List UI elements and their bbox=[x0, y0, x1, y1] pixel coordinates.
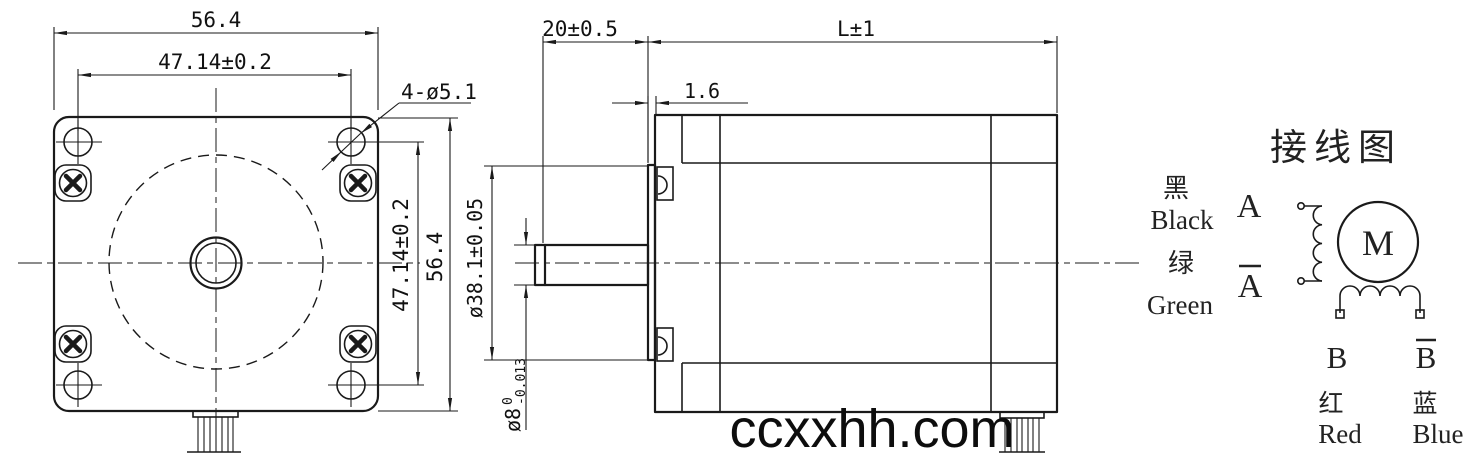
watermark-text: ccxxhh.com bbox=[729, 399, 1014, 459]
shaft-tolerance-lower: -0.013 bbox=[514, 358, 529, 405]
wiring-title: 接线图 bbox=[1270, 127, 1402, 168]
terminal-b-bar-label: B bbox=[1416, 340, 1437, 375]
motor-symbol-label: M bbox=[1362, 223, 1394, 263]
wiring-diagram: 接线图 黑 Black A 绿 Green A M bbox=[1147, 127, 1463, 449]
dim-front-height-outer-label: 56.4 bbox=[423, 232, 447, 283]
dim-shaft-extension: 20±0.5 bbox=[542, 17, 648, 243]
motor-symbol: M bbox=[1338, 202, 1418, 282]
dim-front-width-outer-label: 56.4 bbox=[191, 8, 242, 32]
svg-text:A: A bbox=[1238, 268, 1263, 305]
terminal-a-bar-label: A bbox=[1238, 266, 1263, 305]
assembly-screw-top-left bbox=[55, 165, 91, 201]
mounting-hole-bottom-left bbox=[56, 363, 102, 407]
svg-text:B: B bbox=[1416, 340, 1437, 375]
dim-front-width-holes-label: 47.14±0.2 bbox=[158, 50, 272, 74]
lead-blue-cn: 蓝 bbox=[1412, 390, 1437, 418]
dim-boss-diameter-label: ø38.1±0.05 bbox=[463, 198, 487, 318]
dim-front-height-holes-label: 47.14±0.2 bbox=[389, 198, 413, 312]
mounting-hole-top-left bbox=[56, 120, 102, 164]
dim-body-length-label: L±1 bbox=[837, 17, 875, 41]
dim-shaft-diameter: ø8 0 -0.013 bbox=[501, 218, 535, 432]
dim-front-height-holes: 47.14±0.2 bbox=[389, 142, 418, 385]
phase-a-winding bbox=[1298, 203, 1322, 284]
callout-mounting-holes: 4-ø5.1 bbox=[322, 80, 477, 170]
terminal-a-label: A bbox=[1237, 188, 1262, 225]
side-view: 20±0.5 L±1 1.6 ø38.1±0.05 bbox=[463, 17, 1140, 452]
shaft bbox=[535, 245, 648, 285]
lead-black-cn: 黑 bbox=[1163, 173, 1189, 203]
stepper-motor-drawing: 56.4 47.14±0.2 4-ø5.1 47.14±0.2 56.4 bbox=[0, 0, 1479, 474]
flange-hole-section-bottom bbox=[657, 328, 673, 361]
lead-green-cn: 绿 bbox=[1168, 248, 1194, 278]
drawing-canvas: 56.4 47.14±0.2 4-ø5.1 47.14±0.2 56.4 bbox=[0, 0, 1479, 474]
mounting-hole-bottom-right bbox=[328, 363, 424, 407]
assembly-screw-bottom-left bbox=[55, 326, 91, 362]
dim-shaft-diameter-label: ø8 bbox=[501, 408, 525, 432]
flange-hole-section-top bbox=[657, 167, 673, 200]
dim-boss-thickness: 1.6 bbox=[612, 79, 748, 162]
lead-red-cn: 红 bbox=[1318, 390, 1343, 418]
dim-boss-thickness-label: 1.6 bbox=[684, 79, 720, 103]
front-lead-wires bbox=[187, 411, 241, 452]
front-view: 56.4 47.14±0.2 4-ø5.1 47.14±0.2 56.4 bbox=[18, 8, 477, 452]
assembly-screw-top-right bbox=[340, 165, 376, 201]
dim-front-width-holes: 47.14±0.2 bbox=[78, 50, 351, 131]
lead-red-en: Red bbox=[1318, 419, 1362, 449]
lead-green-en: Green bbox=[1147, 290, 1213, 320]
callout-mounting-holes-label: 4-ø5.1 bbox=[401, 80, 477, 104]
terminal-b-label: B bbox=[1327, 340, 1348, 375]
lead-black-en: Black bbox=[1151, 205, 1214, 235]
assembly-screw-bottom-right bbox=[340, 326, 376, 362]
dim-shaft-extension-label: 20±0.5 bbox=[542, 17, 618, 41]
lead-blue-en: Blue bbox=[1413, 419, 1464, 449]
phase-b-winding bbox=[1336, 286, 1424, 318]
